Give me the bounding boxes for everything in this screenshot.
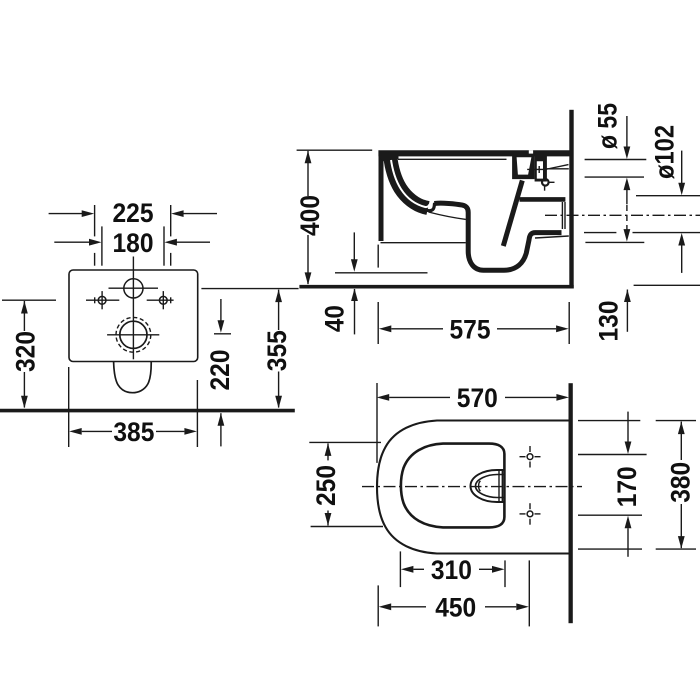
svg-text:400: 400 bbox=[295, 195, 325, 236]
svg-text:40: 40 bbox=[320, 305, 350, 332]
svg-text:570: 570 bbox=[457, 383, 498, 413]
svg-text:575: 575 bbox=[450, 314, 491, 344]
svg-text:450: 450 bbox=[435, 592, 476, 622]
svg-text:320: 320 bbox=[11, 331, 41, 372]
svg-text:ø102: ø102 bbox=[650, 125, 680, 179]
svg-text:310: 310 bbox=[431, 555, 472, 585]
svg-text:220: 220 bbox=[205, 350, 235, 391]
svg-text:380: 380 bbox=[666, 462, 696, 503]
svg-text:ø 55: ø 55 bbox=[593, 103, 623, 149]
svg-text:385: 385 bbox=[113, 417, 154, 447]
svg-text:250: 250 bbox=[311, 465, 341, 506]
svg-text:225: 225 bbox=[113, 198, 154, 228]
svg-text:355: 355 bbox=[262, 330, 292, 371]
svg-text:170: 170 bbox=[612, 466, 642, 507]
svg-text:180: 180 bbox=[113, 228, 154, 258]
svg-text:130: 130 bbox=[593, 301, 623, 342]
